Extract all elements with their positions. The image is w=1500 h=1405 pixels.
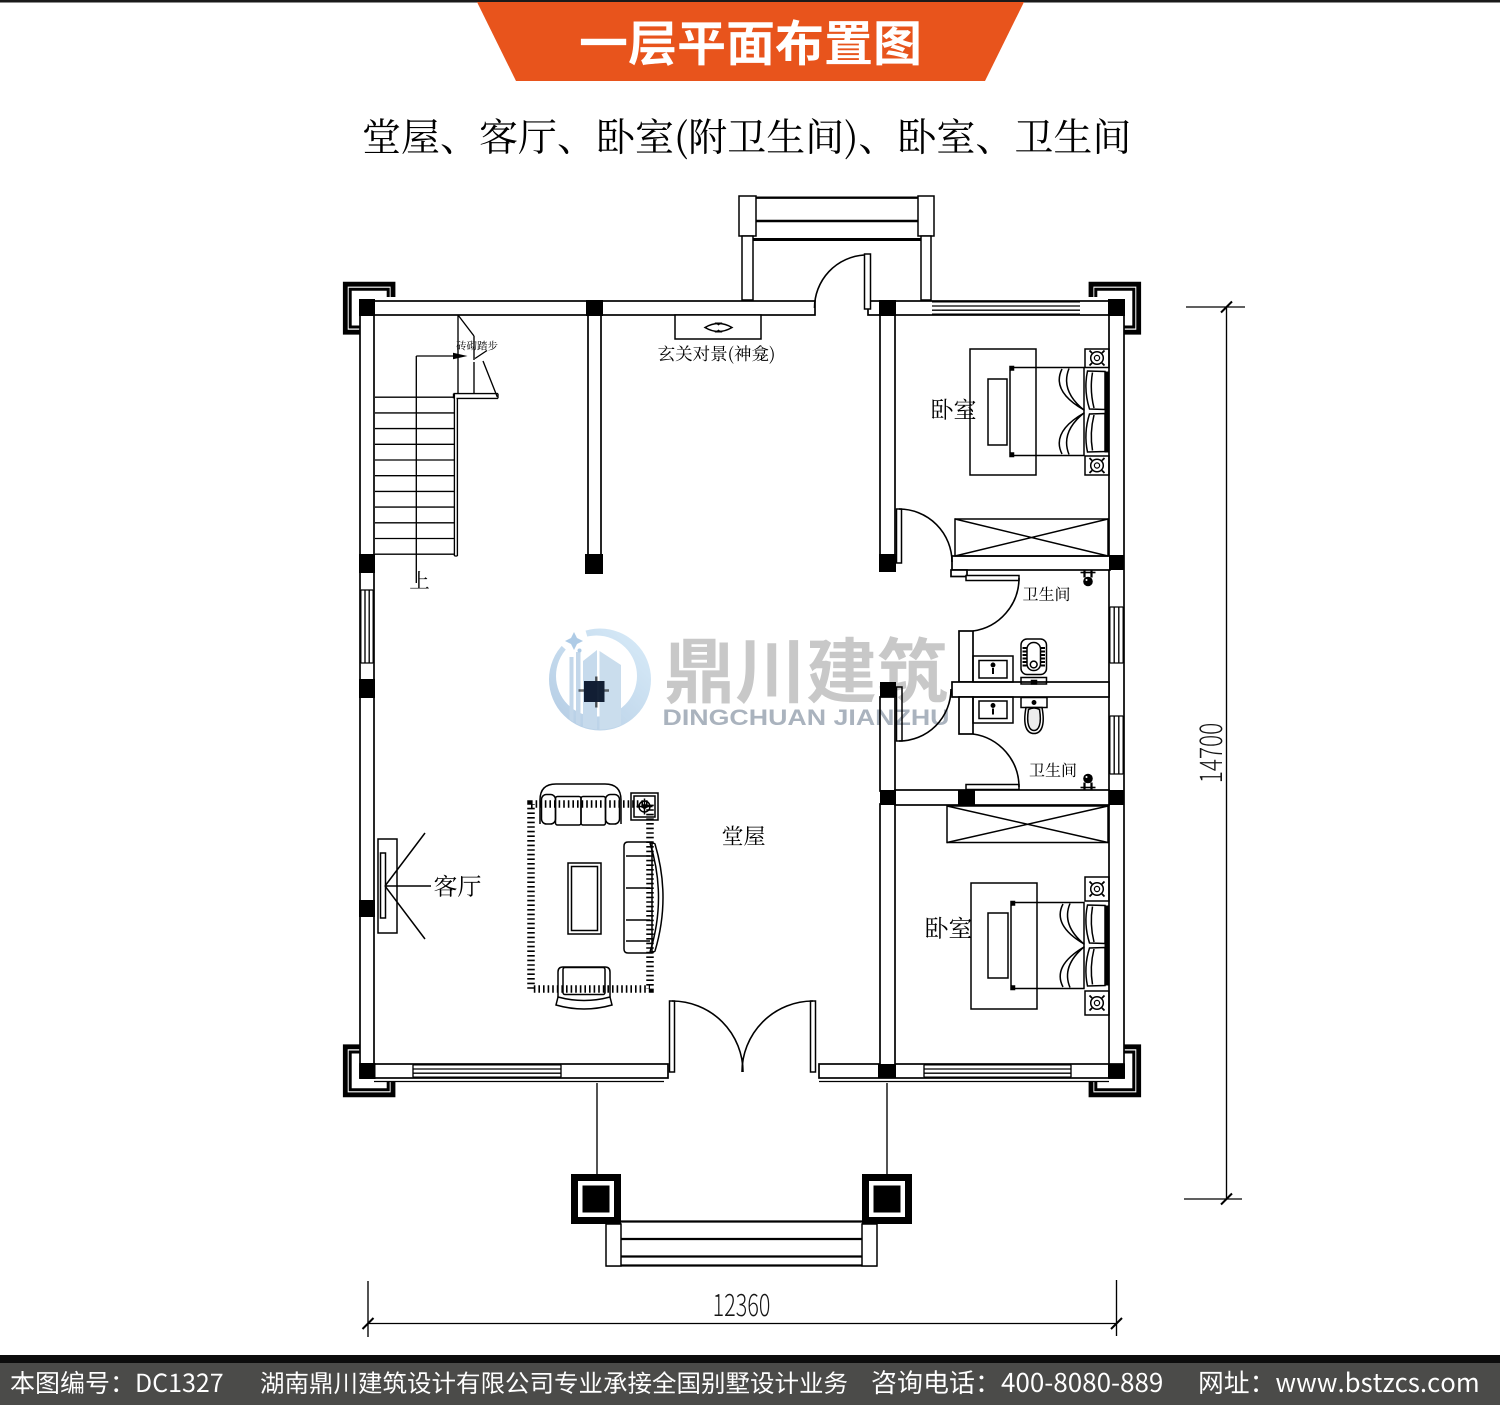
svg-text:DINGCHUAN JIANZHU: DINGCHUAN JIANZHU bbox=[663, 705, 950, 730]
